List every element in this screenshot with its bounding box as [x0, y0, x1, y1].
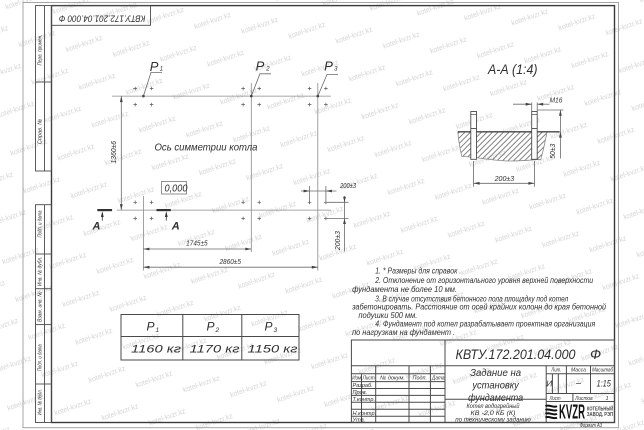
svg-text:А-А (1:4): А-А (1:4): [487, 62, 537, 77]
svg-text:Ось симметрии котла: Ось симметрии котла: [155, 141, 258, 153]
svg-text:1: 1: [156, 327, 160, 334]
svg-text:1150 кг: 1150 кг: [248, 344, 299, 356]
svg-text:P: P: [265, 320, 273, 334]
svg-text:1160 кг: 1160 кг: [131, 344, 182, 356]
svg-text:50±3: 50±3: [548, 143, 557, 159]
svg-text:P: P: [207, 320, 215, 334]
svg-text:Н.контр.: Н.контр.: [353, 411, 377, 417]
svg-text:по техническому заданию: по техническому заданию: [455, 417, 531, 424]
svg-text:по нагрузкам на фундамент .: по нагрузкам на фундамент .: [352, 328, 455, 337]
svg-text:А: А: [92, 221, 101, 233]
svg-text:Взам. инв. №: Взам. инв. №: [37, 291, 43, 322]
svg-text:P: P: [324, 58, 333, 73]
svg-text:2: 2: [265, 66, 270, 72]
svg-text:Изм.Лист: Изм.Лист: [352, 376, 375, 382]
svg-text:Подп. и дата: Подп. и дата: [37, 210, 43, 238]
svg-text:Т.контр.: Т.контр.: [353, 397, 376, 403]
svg-text:Утв.: Утв.: [352, 418, 366, 424]
svg-text:Инв. № подл.: Инв. № подл.: [37, 389, 43, 415]
svg-text:Формат А3: Формат А3: [580, 423, 603, 429]
svg-text:P: P: [150, 59, 159, 74]
svg-text:Перв. примен.: Перв. примен.: [37, 35, 43, 66]
svg-text:фундамента не более 10 мм.: фундамента не более 10 мм.: [352, 285, 457, 294]
svg-text:КВТУ.172.201.04.000: КВТУ.172.201.04.000: [456, 346, 576, 362]
svg-text:№ докум.: № докум.: [380, 376, 405, 382]
svg-text:Лит.: Лит.: [551, 368, 562, 374]
svg-text:P: P: [256, 58, 265, 73]
svg-text:1: 1: [160, 66, 163, 72]
svg-text:Масса: Масса: [571, 368, 586, 374]
svg-text:Разраб.: Разраб.: [353, 383, 373, 389]
svg-text:200±3: 200±3: [333, 230, 342, 251]
svg-text:А: А: [171, 221, 180, 233]
svg-text:1: 1: [606, 396, 609, 402]
svg-text:1170 кг: 1170 кг: [190, 344, 241, 356]
svg-text:Инв. № дубл.: Инв. № дубл.: [37, 257, 43, 287]
svg-text:1745±5: 1745±5: [186, 238, 208, 247]
svg-text:Подп. и дата: Подп. и дата: [37, 344, 43, 372]
svg-text:КВТУ.172.201.04.000 Ф: КВТУ.172.201.04.000 Ф: [59, 13, 146, 24]
svg-text:2860±5: 2860±5: [219, 257, 242, 266]
svg-text:P: P: [147, 320, 155, 334]
svg-text:2: 2: [215, 327, 220, 334]
svg-text:Масштаб: Масштаб: [592, 368, 614, 374]
svg-text:Задание на: Задание на: [470, 367, 521, 379]
svg-text:ЗАВОД, РЭП: ЗАВОД, РЭП: [587, 412, 614, 418]
svg-text:1. * Размеры для справок .: 1. * Размеры для справок .: [375, 267, 461, 276]
svg-text:установку: установку: [471, 380, 519, 392]
svg-text:КОТЕЛЬНЫЙ: КОТЕЛЬНЫЙ: [587, 404, 614, 412]
svg-text:–: –: [575, 378, 582, 388]
svg-text:Дата: Дата: [431, 376, 444, 382]
svg-text:1360±6: 1360±6: [109, 140, 118, 163]
svg-text:200±3: 200±3: [339, 181, 356, 190]
svg-text:1:15: 1:15: [596, 379, 611, 389]
svg-text:Пров.: Пров.: [353, 390, 368, 396]
svg-text:М16: М16: [550, 95, 564, 104]
svg-text:Справ. №: Справ. №: [37, 119, 43, 145]
svg-text:Подп.: Подп.: [413, 376, 428, 382]
svg-text:KVZR: KVZR: [559, 402, 585, 424]
svg-text:0,000: 0,000: [165, 184, 188, 195]
svg-text:И: И: [546, 378, 553, 388]
svg-text:200±3: 200±3: [494, 174, 515, 183]
svg-text:Ф: Ф: [590, 346, 601, 362]
svg-text:3: 3: [274, 327, 278, 334]
svg-text:2. Отклонение от горизонтально: 2. Отклонение от горизонтального уровня …: [374, 276, 593, 285]
